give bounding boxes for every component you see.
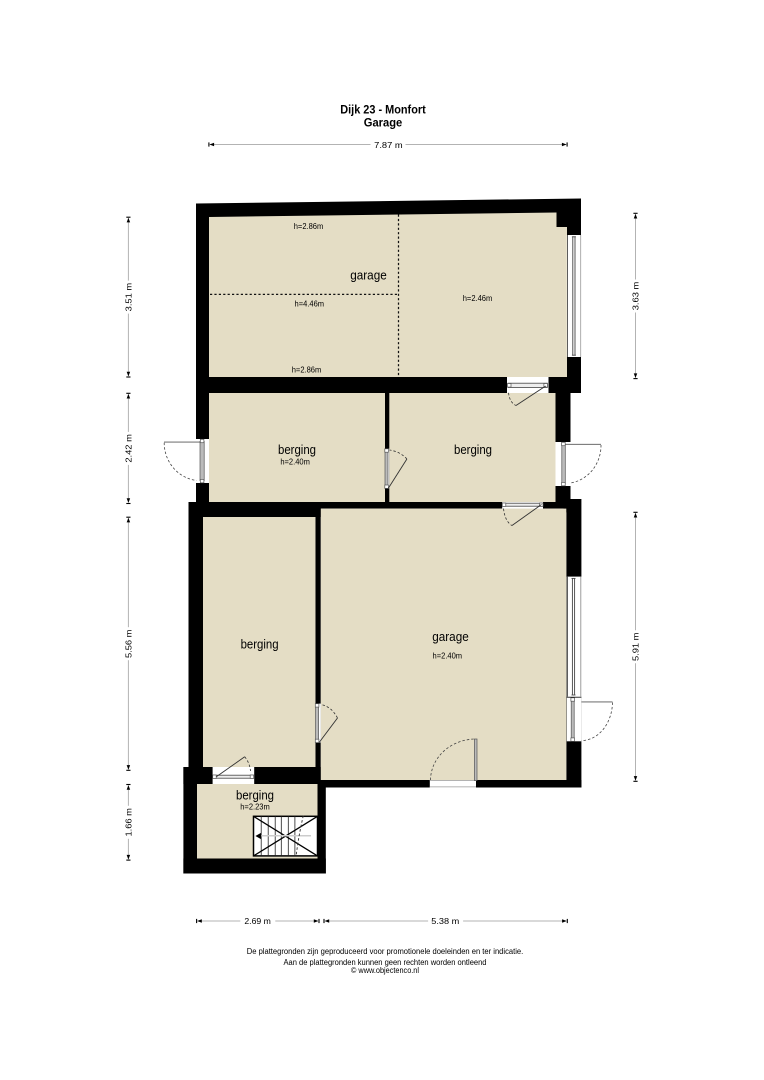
svg-text:2.42 m: 2.42 m xyxy=(123,434,133,463)
svg-text:garage: garage xyxy=(432,630,469,644)
svg-text:h=2.86m: h=2.86m xyxy=(294,222,324,231)
svg-text:h=2.23m: h=2.23m xyxy=(240,802,270,811)
svg-text:2.69 m: 2.69 m xyxy=(244,916,271,926)
svg-text:© www.objectenco.nl: © www.objectenco.nl xyxy=(351,966,419,975)
svg-text:berging: berging xyxy=(241,638,279,652)
svg-text:h=2.86m: h=2.86m xyxy=(292,365,322,374)
svg-text:Dijk 23 - Monfort: Dijk 23 - Monfort xyxy=(340,103,426,117)
svg-text:Garage: Garage xyxy=(364,116,403,130)
svg-text:h=2.46m: h=2.46m xyxy=(463,294,493,303)
svg-text:De plattegronden zijn geproduc: De plattegronden zijn geproduceerd voor … xyxy=(247,947,524,956)
svg-text:3.51 m: 3.51 m xyxy=(123,283,133,312)
svg-text:h=2.40m: h=2.40m xyxy=(280,457,310,466)
svg-text:1.66 m: 1.66 m xyxy=(123,808,133,837)
svg-text:3.63 m: 3.63 m xyxy=(631,282,641,311)
svg-text:berging: berging xyxy=(454,443,492,457)
svg-text:h=2.40m: h=2.40m xyxy=(433,652,463,661)
svg-text:7.87 m: 7.87 m xyxy=(374,140,403,150)
svg-text:garage: garage xyxy=(350,269,387,283)
svg-text:5.38 m: 5.38 m xyxy=(431,916,459,926)
svg-text:berging: berging xyxy=(278,443,316,457)
svg-text:berging: berging xyxy=(236,789,274,803)
svg-text:5.56 m: 5.56 m xyxy=(123,630,133,659)
svg-text:5.91 m: 5.91 m xyxy=(631,633,641,662)
svg-text:h=4.46m: h=4.46m xyxy=(295,299,325,308)
